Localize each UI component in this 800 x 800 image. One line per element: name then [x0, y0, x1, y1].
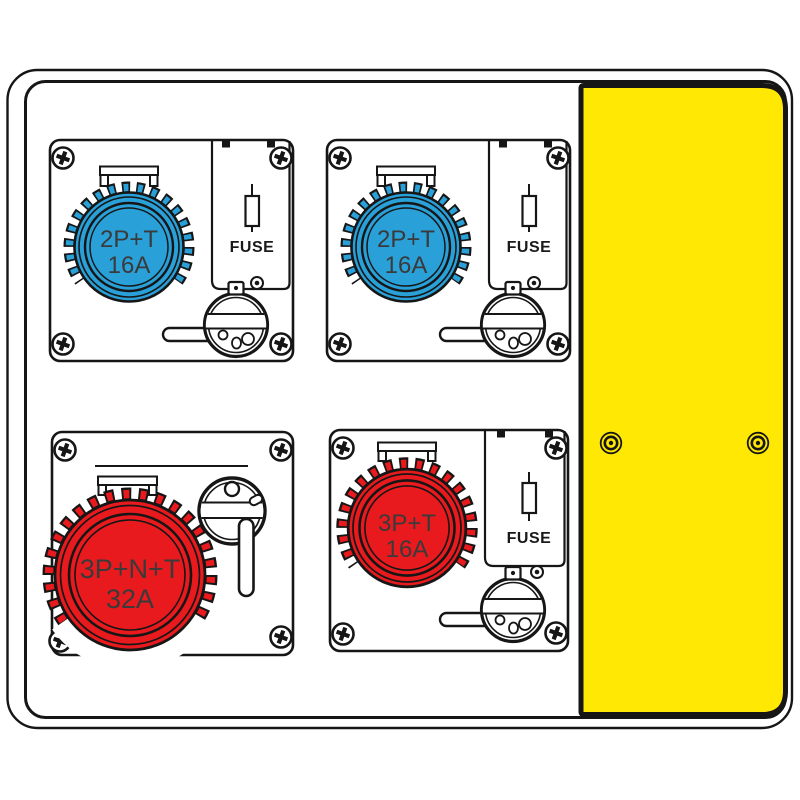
- corner-screw-icon: [333, 624, 354, 645]
- fuse-label: FUSE: [507, 239, 552, 256]
- corner-screw-icon: [333, 438, 354, 459]
- socket-label: 16A: [386, 536, 429, 563]
- socket-label: 2P+T: [377, 226, 435, 253]
- distribution-board-screenshot: FUSE 2P+T 16A FUSE: [0, 0, 800, 800]
- corner-screw-icon: [55, 440, 76, 461]
- corner-screw-icon: [546, 623, 567, 644]
- corner-screw-icon: [53, 148, 74, 169]
- socket-label: 16A: [108, 252, 151, 279]
- corner-screw-icon: [271, 627, 292, 648]
- socket-label: 32A: [106, 584, 154, 614]
- compartment-clip: [267, 141, 275, 148]
- small-screw-icon: [531, 566, 543, 578]
- module-bottom-right: FUSE 3P+T 16A: [330, 430, 568, 651]
- module-top-right: FUSE 2P+T 16A: [327, 140, 570, 361]
- compartment-clip: [499, 141, 507, 148]
- corner-screw-icon: [546, 438, 567, 459]
- module-top-left: FUSE 2P+T 16A: [50, 140, 293, 361]
- compartment-clip: [545, 431, 553, 438]
- corner-screw-icon: [330, 148, 351, 169]
- fuse-label: FUSE: [507, 530, 552, 547]
- compartment-clip: [544, 141, 552, 148]
- switch-lever: [239, 519, 254, 596]
- corner-screw-icon: [548, 334, 569, 355]
- small-screw-icon: [528, 277, 540, 289]
- cover-panel: [581, 86, 786, 715]
- panel-screw-icon: [601, 433, 622, 454]
- corner-screw-icon: [271, 148, 292, 169]
- corner-screw-icon: [53, 334, 74, 355]
- corner-screw-icon: [271, 334, 292, 355]
- socket-label: 2P+T: [100, 226, 158, 253]
- module-bottom-left: 3P+N+T 32A: [49, 432, 293, 670]
- small-screw-icon: [251, 277, 263, 289]
- corner-screw-icon: [330, 334, 351, 355]
- panel-screw-icon: [748, 433, 769, 454]
- cover-panel-face: [581, 86, 786, 715]
- board-diagram: FUSE 2P+T 16A FUSE: [0, 0, 800, 800]
- compartment-clip: [497, 431, 505, 438]
- corner-screw-icon: [548, 148, 569, 169]
- socket-label: 3P+T: [378, 510, 436, 537]
- socket-label: 16A: [385, 252, 428, 279]
- compartment-clip: [222, 141, 230, 148]
- fuse-label: FUSE: [230, 239, 275, 256]
- corner-screw-icon: [271, 440, 292, 461]
- socket-label: 3P+N+T: [80, 554, 181, 584]
